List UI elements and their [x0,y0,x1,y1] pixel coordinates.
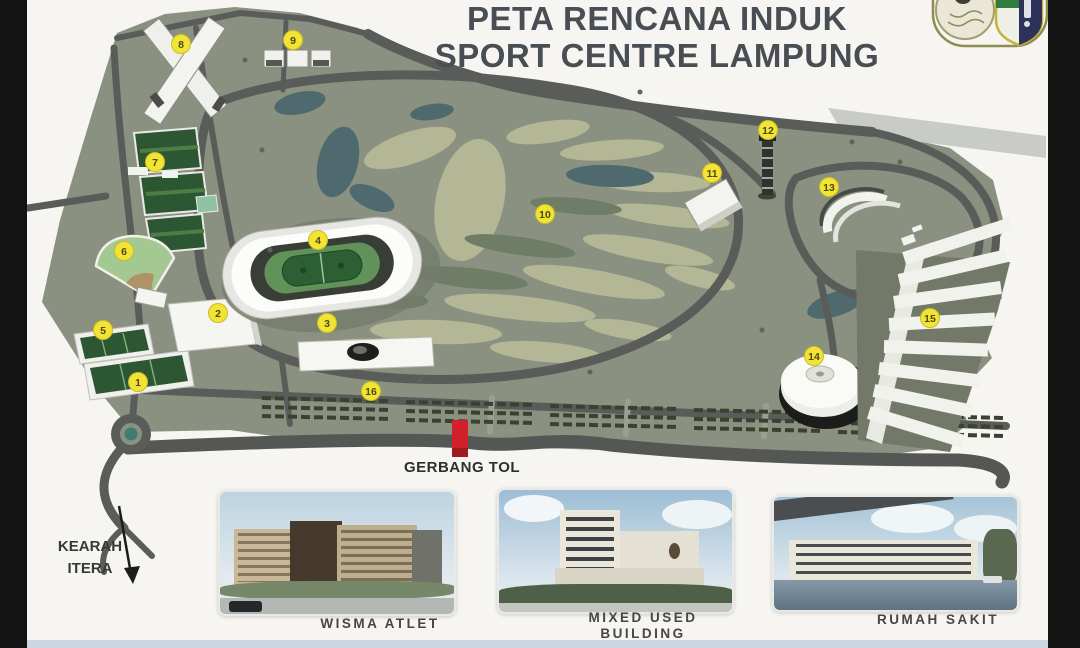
map-marker-10: 10 [536,205,555,224]
svg-text:12: 12 [762,125,774,137]
photo-window-bands [796,544,970,577]
photo-floors [238,533,292,582]
caption-mixed-used: MIXED USED BUILDING [553,610,733,642]
photo-logo-oval [669,543,680,559]
caption-line: WISMA ATLET [260,616,500,632]
map-marker-2: 2 [209,304,228,323]
svg-text:6: 6 [121,246,127,258]
kearah-itera-label: KEARAH ITERA [42,536,138,580]
page-title: PETA RENCANA INDUK SPORT CENTRE LAMPUNG [420,0,894,74]
svg-text:3: 3 [324,318,330,330]
svg-text:10: 10 [539,209,551,221]
svg-text:16: 16 [365,386,377,398]
map-marker-4: 4 [309,231,328,250]
svg-text:5: 5 [100,325,106,337]
svg-text:8: 8 [178,39,184,51]
svg-text:1: 1 [135,377,141,389]
map-marker-15: 15 [921,309,940,328]
svg-text:2: 2 [215,308,221,320]
map-marker-13: 13 [820,178,839,197]
mixed-used-photo [497,488,734,614]
gerbang-tol-label: GERBANG TOL [402,459,522,476]
map-marker-7: 7 [146,153,165,172]
rumah-sakit-photo [772,495,1019,612]
building-9-row [264,50,331,67]
svg-text:7: 7 [152,157,158,169]
svg-text:13: 13 [823,182,835,194]
map-marker-14: 14 [805,347,824,366]
kearah-line-1: KEARAH [42,536,138,558]
kearah-line-2: ITERA [42,558,138,580]
map-marker-8: 8 [172,35,191,54]
photo-cloud [662,500,732,529]
logos [933,0,1047,46]
toll-gate-marker [452,420,468,457]
caption-line: RUMAH SAKIT [818,612,1058,628]
svg-text:4: 4 [315,235,321,247]
svg-text:15: 15 [924,313,936,325]
bottom-strip [27,640,1048,648]
screenshot-stage: 12345678910111213141516 PETA RENCANA IND… [0,0,1080,648]
title-line-2: SPORT CENTRE LAMPUNG [420,37,894,74]
building-3-slab [298,337,434,371]
photo-building-center [290,521,341,589]
photo-car [229,601,262,612]
roundabout [111,414,151,454]
map-marker-6: 6 [115,242,134,261]
photo-building-far-right [412,530,442,587]
map-marker-11: 11 [703,164,722,183]
photo-car [983,576,1002,583]
map-marker-3: 3 [318,314,337,333]
caption-rumah-sakit: RUMAH SAKIT [818,612,1058,628]
map-marker-5: 5 [94,321,113,340]
photo-trees [499,584,732,605]
svg-text:14: 14 [808,351,820,363]
photo-building [789,540,979,581]
photo-cloud [504,495,565,522]
photo-trees [220,581,454,599]
photo-building-right [337,525,417,588]
caption-line: MIXED USED [553,610,733,626]
letterbox-left [0,0,27,648]
svg-text:11: 11 [706,168,717,180]
svg-text:9: 9 [290,35,296,47]
caption-wisma-atlet: WISMA ATLET [260,616,500,632]
map-marker-1: 1 [129,373,148,392]
photo-building-left [234,529,295,588]
photo-window-bands [566,517,614,568]
round-emblem-logo [936,0,994,39]
wisma-atlet-photo [218,490,456,616]
photo-water [774,580,1017,611]
photo-cloud [871,504,954,533]
map-marker-16: 16 [362,382,381,401]
map-marker-12: 12 [759,121,778,140]
photo-floors [341,530,413,583]
title-line-1: PETA RENCANA INDUK [420,0,894,37]
letterbox-right [1048,0,1080,648]
map-marker-9: 9 [284,31,303,50]
